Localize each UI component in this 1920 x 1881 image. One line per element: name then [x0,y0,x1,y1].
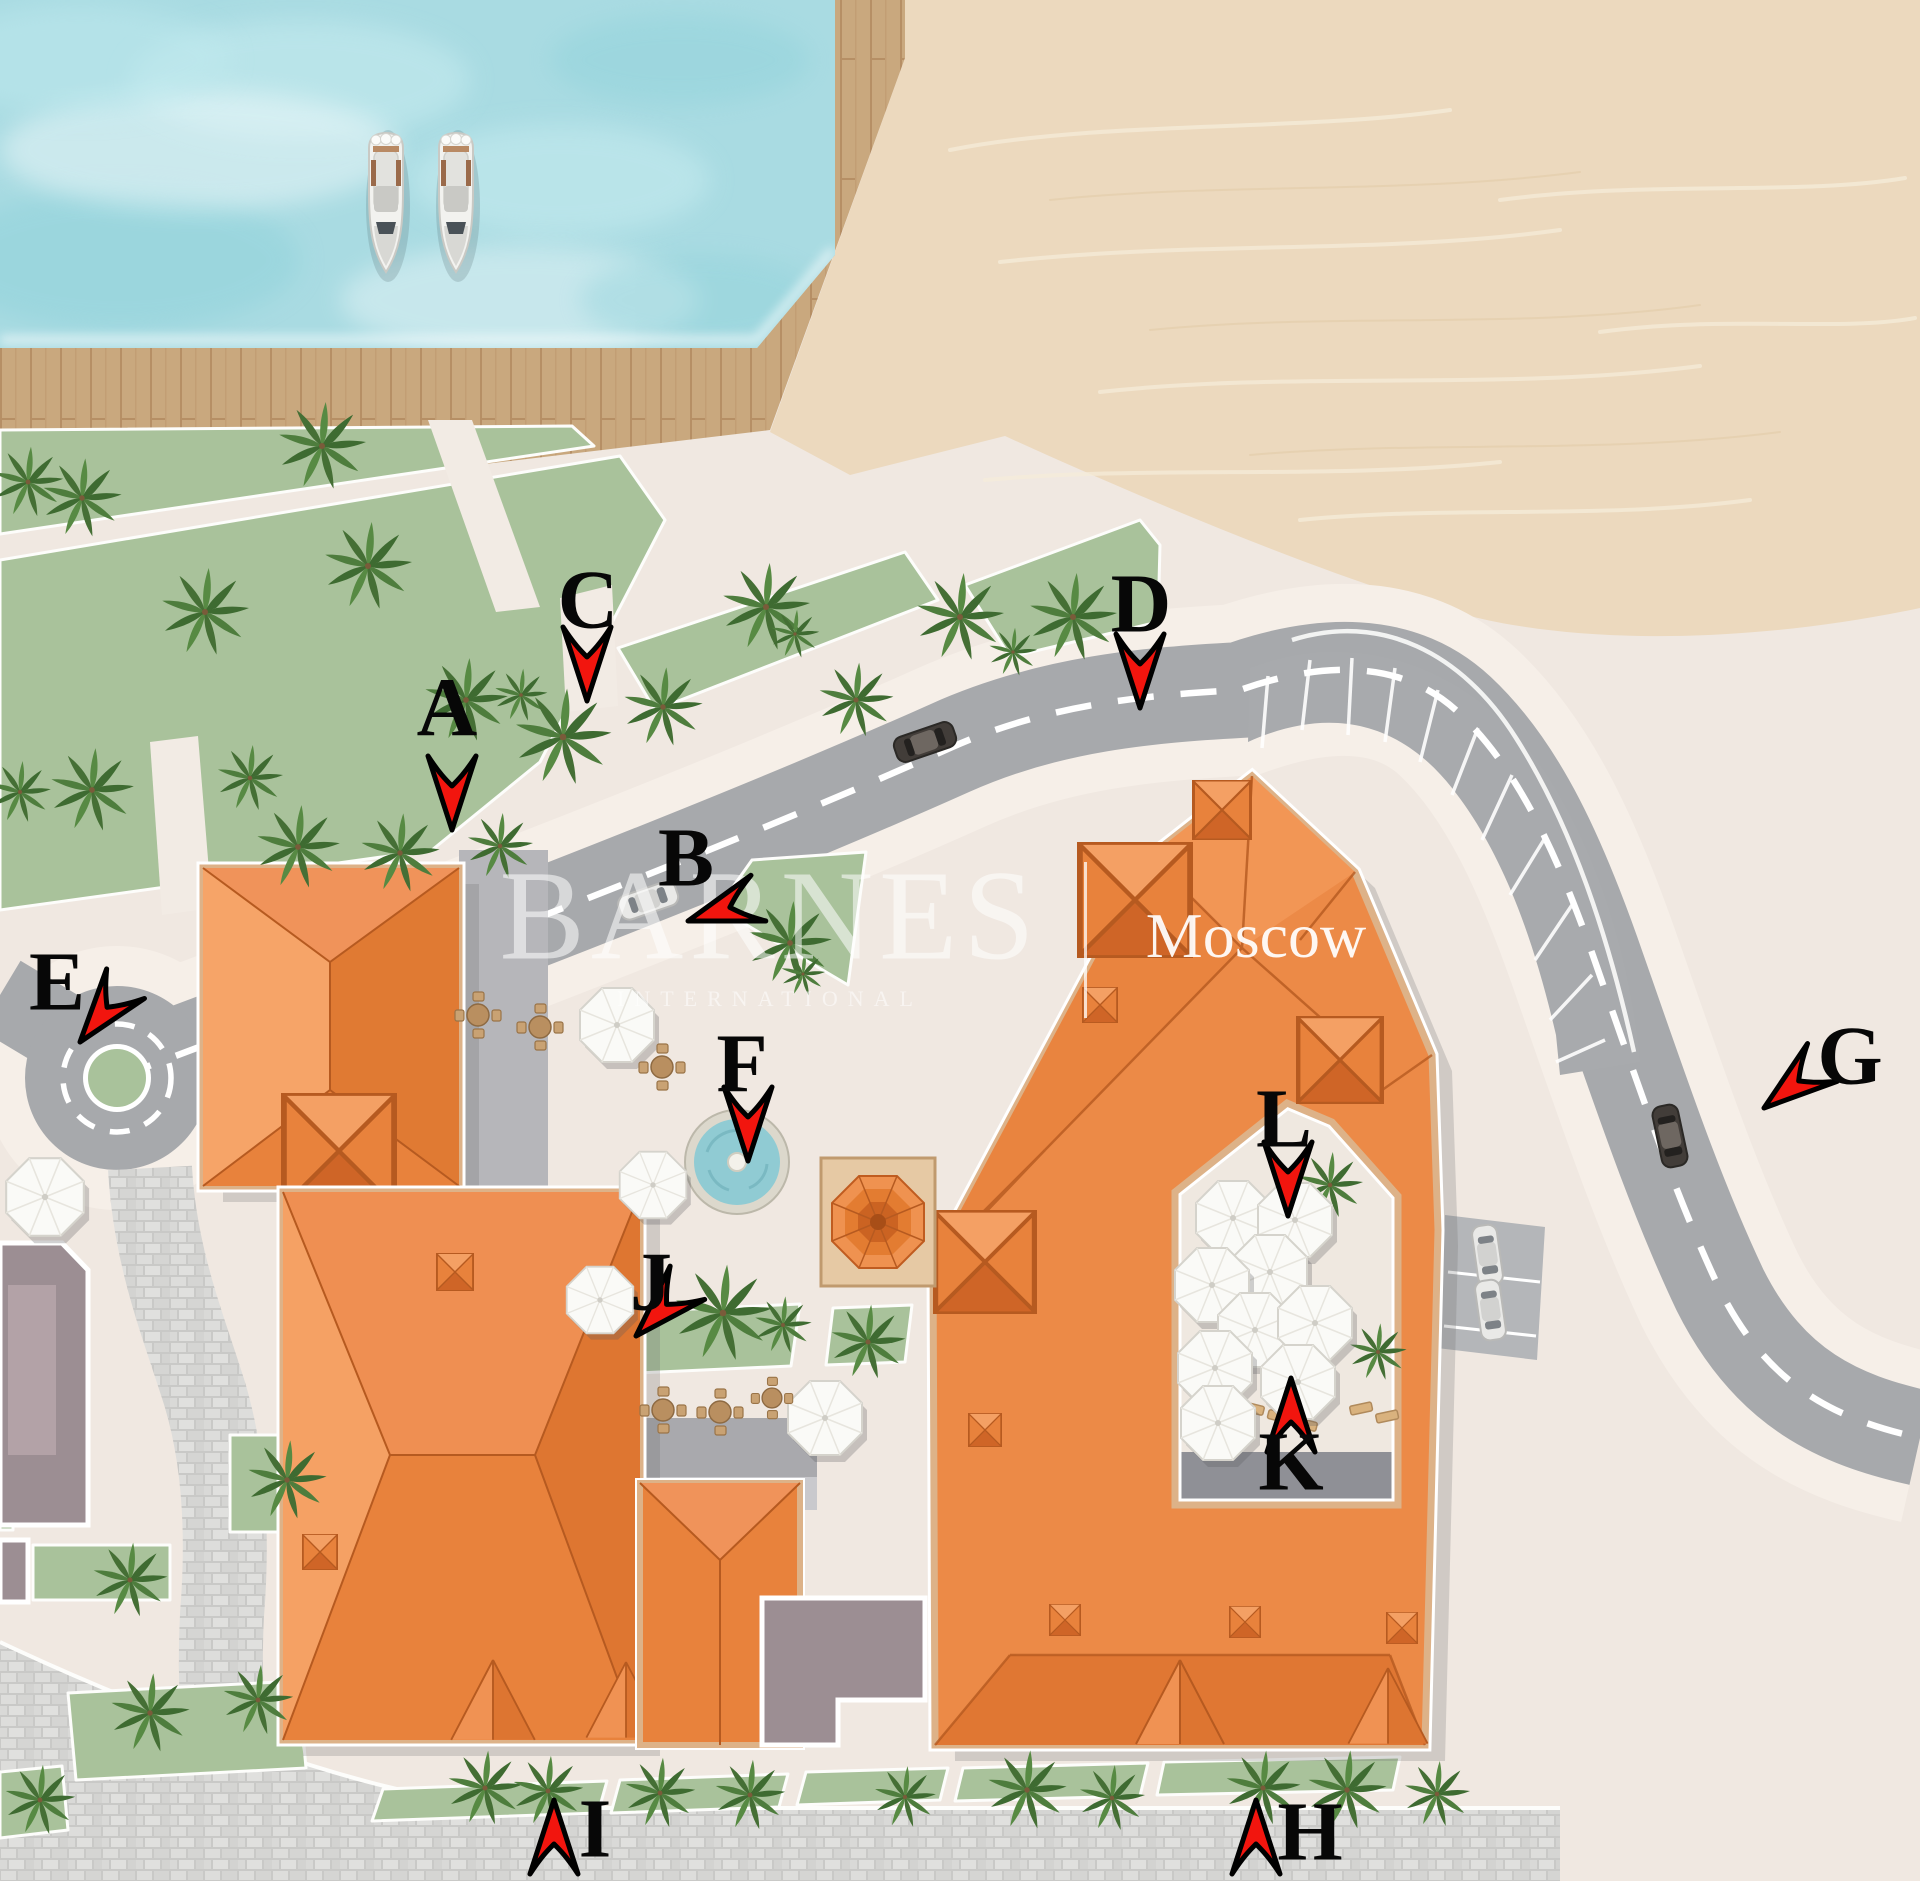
marker-letter: G [1817,1015,1882,1099]
markers-layer: ABCDEFGHIJKL [0,0,1920,1881]
marker-letter: K [1258,1421,1323,1505]
marker-letter: I [579,1788,612,1872]
marker-letter: D [1111,563,1172,647]
marker-letter: B [658,817,714,901]
marker-letter: L [1256,1078,1312,1162]
marker-letter: C [558,559,619,643]
marker-arrow-icon [1060,628,1220,788]
marker-letter: H [1277,1791,1342,1875]
marker-letter: E [29,941,85,1025]
marker-letter: F [716,1023,767,1107]
marker-letter: A [417,667,478,751]
marker-letter: J [630,1241,672,1325]
site-plan: BARNES INTERNATIONAL Moscow ABCDEFGHIJKL [0,0,1920,1881]
